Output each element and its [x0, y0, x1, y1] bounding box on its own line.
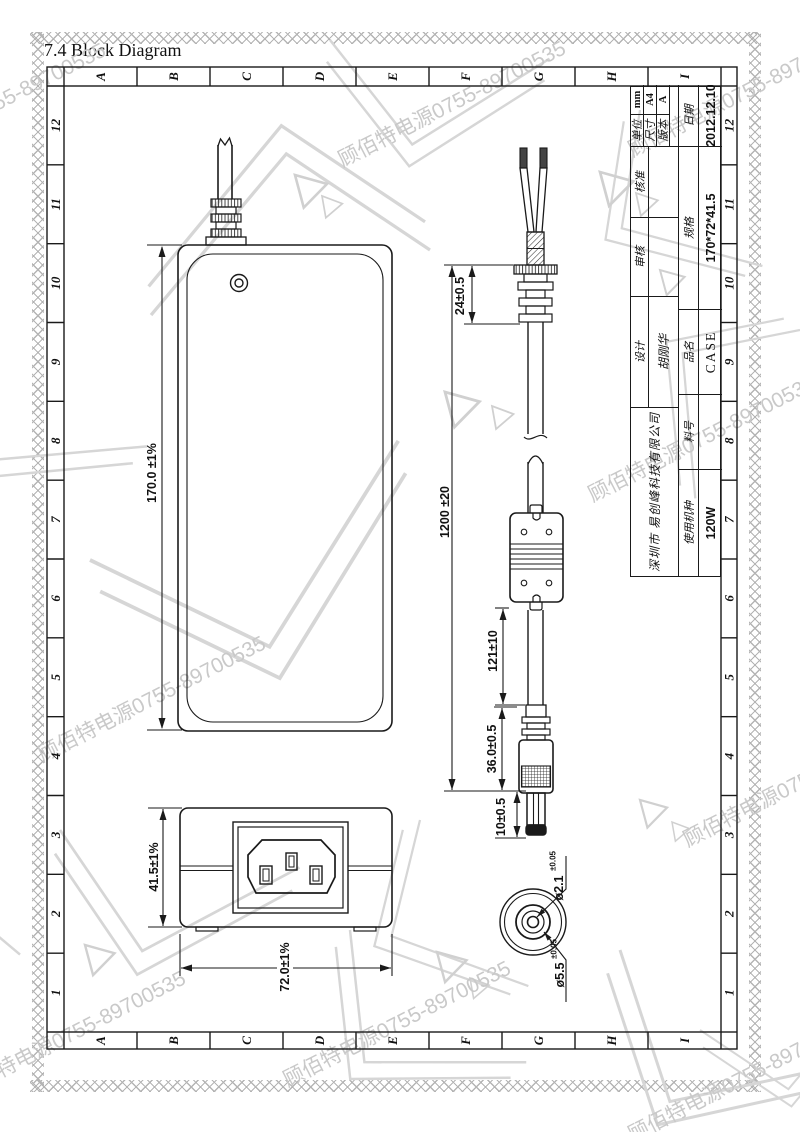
company-name: 深圳市 易创峰科技有限公司	[631, 407, 679, 576]
dim-barrel-tolerance: ±0.05	[550, 938, 559, 959]
dim-plug-tip: 10±0.5	[494, 798, 508, 836]
version-value: A	[657, 85, 670, 114]
dim-body-width: 72.0±1%	[278, 942, 292, 991]
watermark-text: 顾佰特电源0755-89700535	[279, 957, 514, 1092]
design-label: 设计	[631, 296, 649, 407]
unit-label: 单位	[631, 114, 644, 146]
grid-row-label: 2	[48, 910, 63, 918]
grid-row-label: 3	[48, 831, 63, 839]
dc-plug	[519, 705, 553, 835]
grid-column-label: H	[604, 1035, 619, 1047]
title-block: 深圳市 易创峰科技有限公司 设计 审核 核准 胡刚华 单位 mm 尺寸 A4 版…	[630, 86, 721, 577]
version-label: 版本	[657, 114, 670, 146]
cable-break-symbol	[524, 435, 547, 439]
grid-column-label: A	[93, 72, 108, 82]
grid-column-label: I	[677, 1037, 692, 1044]
dim-body-length: 170.0 ±1%	[145, 443, 159, 503]
model-value: 120W	[699, 469, 722, 576]
grid-row-label: 4	[48, 752, 63, 760]
ferrite-block	[510, 505, 563, 610]
part-no-label: 料号	[679, 394, 699, 469]
dim-segment: 121±10	[486, 630, 500, 672]
review-signature	[649, 217, 679, 296]
cable-assembly	[510, 148, 563, 835]
wire-tip-right	[540, 148, 547, 168]
grid-column-label: E	[385, 1036, 400, 1046]
grid-row-label: 3	[722, 831, 737, 839]
grid-row-label: 6	[48, 595, 63, 602]
drawing-page: 7.4 Block Diagram	[0, 0, 800, 1132]
dimension-layer	[147, 245, 566, 1002]
date-value: 2012.12.10	[699, 85, 722, 146]
grid-column-label: B	[166, 1036, 181, 1046]
plug-knurl	[522, 766, 551, 787]
grid-row-label: 5	[48, 674, 63, 681]
design-signature: 胡刚华	[649, 296, 679, 407]
grid-row-label: 9	[722, 358, 737, 365]
grid-row-label: 10	[48, 276, 63, 290]
approve-signature	[649, 146, 679, 217]
grid-column-label: F	[458, 72, 473, 82]
grid-column-label: A	[93, 1036, 108, 1046]
grid-row-label: 7	[722, 516, 737, 523]
model-label: 使用机种	[679, 469, 699, 576]
watermark-text: 顾佰特电源0755-89700535	[0, 39, 110, 174]
grid-column-label: F	[458, 1036, 473, 1046]
product-label: 品名	[679, 309, 699, 394]
spec-value: 170*72*41.5	[699, 146, 722, 309]
grid-row-label: 12	[48, 118, 63, 131]
dim-plug-body: 36.0±0.5	[485, 725, 499, 774]
grid-row-label: 8	[48, 437, 63, 444]
grid-row-label: 12	[722, 118, 737, 131]
grid-column-label: C	[239, 72, 254, 81]
dimension-texts: 170.0 ±1% 41.5±1% 72.0±1% 24±0.5 1200 ±2…	[145, 277, 567, 992]
dim-cable-length: 1200 ±20	[438, 486, 452, 538]
unit-value: mm	[631, 85, 644, 114]
watermark-text: 顾佰特电源0755-89700535	[679, 717, 800, 852]
approve-label: 核准	[631, 146, 649, 217]
dim-pin-tolerance: ±0.05	[549, 850, 558, 871]
date-label: 日期	[679, 85, 699, 146]
grid-row-label: 4	[722, 752, 737, 760]
grid-column-label: I	[677, 73, 692, 80]
plug-tip	[526, 825, 546, 835]
grid-row-label: 1	[722, 989, 737, 996]
product-value: CASE	[699, 309, 722, 394]
dim-pin-diameter: ø2.1	[552, 875, 566, 900]
spec-label: 规格	[679, 146, 699, 309]
dim-body-height: 41.5±1%	[147, 842, 161, 891]
grid-row-label: 8	[722, 437, 737, 444]
grid-column-label: G	[531, 71, 546, 81]
dim-bushing: 24±0.5	[453, 277, 467, 315]
grid-row-label: 10	[722, 276, 737, 290]
review-label: 审核	[631, 217, 649, 296]
grid-row-label: 5	[722, 674, 737, 681]
title-block-spacer	[670, 85, 679, 146]
grid-column-label: D	[312, 71, 327, 82]
grid-row-label: 2	[722, 910, 737, 918]
grid-column-label: C	[239, 1036, 254, 1045]
grid-row-label: 6	[722, 595, 737, 602]
grid-column-label: G	[531, 1035, 546, 1045]
wire-tip-left	[520, 148, 527, 168]
part-no-value	[699, 394, 722, 469]
grid-row-label: 11	[48, 198, 63, 210]
dim-barrel-diameter: ø5.5	[553, 962, 567, 987]
watermark-text: 顾佰特电源0755-89700535	[334, 37, 569, 172]
c14-pins	[260, 853, 322, 884]
grid-column-label: H	[604, 71, 619, 83]
adapter-top-view	[178, 138, 392, 731]
watermark-text: 顾佰特电源0755-89700535	[34, 632, 269, 767]
grid-row-label: 9	[48, 358, 63, 365]
grid-column-label: E	[385, 72, 400, 82]
size-value: A4	[644, 85, 657, 114]
grid-row-label: 7	[48, 516, 63, 523]
grid-row-label: 1	[48, 989, 63, 996]
grid-column-label: D	[312, 1035, 327, 1046]
grid-column-label: B	[166, 72, 181, 82]
grid-row-label: 11	[722, 198, 737, 210]
size-label: 尺寸	[644, 114, 657, 146]
watermark-text: 顾佰特电源0755-89700535	[0, 967, 190, 1102]
